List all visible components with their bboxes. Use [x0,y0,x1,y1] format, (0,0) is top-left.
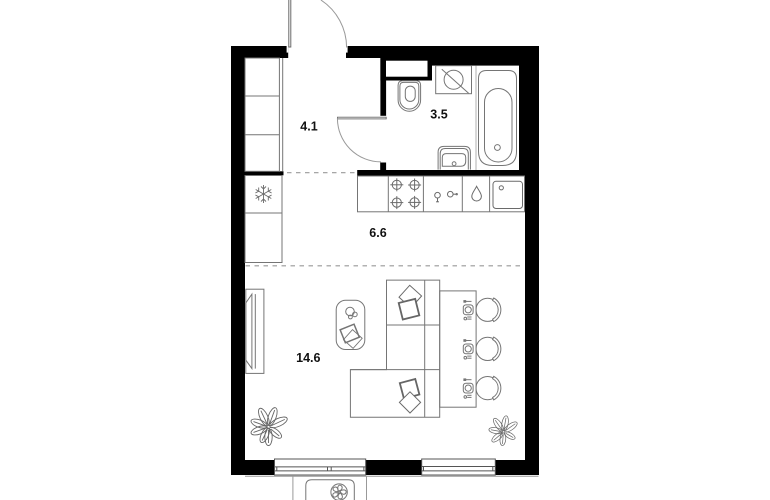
svg-text:14.6: 14.6 [296,351,320,365]
svg-text:4.1: 4.1 [300,120,317,134]
svg-text:3.5: 3.5 [430,108,447,122]
svg-text:6.6: 6.6 [369,226,386,240]
